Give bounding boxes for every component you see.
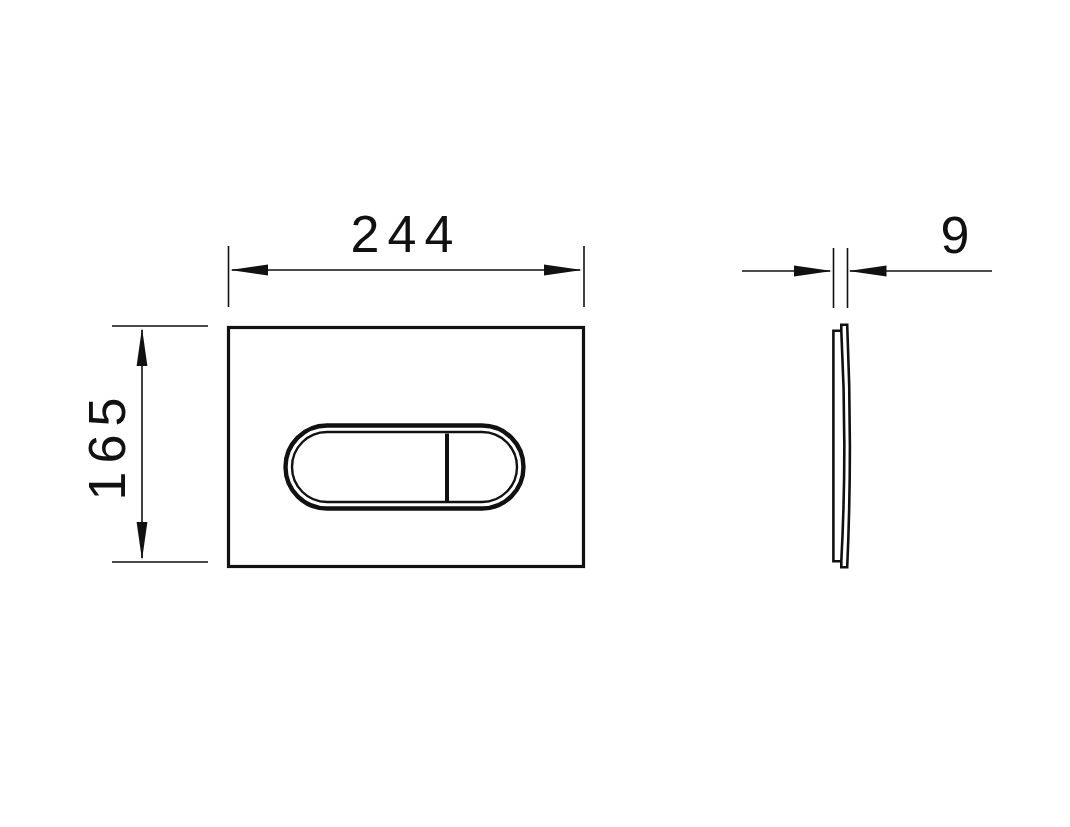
height-dimension-label: 165 [78, 390, 136, 501]
depth-dimension: 9 [742, 206, 992, 308]
side-view [833, 325, 850, 568]
side-profile-front-face [841, 325, 850, 568]
depth-dimension-label: 9 [941, 206, 978, 264]
side-profile-back-edge [833, 331, 841, 562]
height-arrowhead-top [137, 328, 148, 366]
height-dimension: 165 [78, 326, 208, 562]
width-arrowhead-left [230, 265, 268, 276]
plate-front-outline [229, 328, 584, 567]
front-view [229, 328, 584, 567]
width-dimension-label: 244 [351, 205, 462, 263]
flush-plate-drawing-svg: 244 165 9 [0, 0, 1070, 827]
width-dimension: 244 [229, 205, 585, 307]
width-arrowhead-right [544, 265, 582, 276]
height-arrowhead-bottom [137, 522, 148, 560]
technical-drawing-page: 244 165 9 [0, 0, 1070, 827]
depth-arrowhead-left [794, 266, 832, 277]
depth-arrowhead-right [849, 266, 887, 277]
